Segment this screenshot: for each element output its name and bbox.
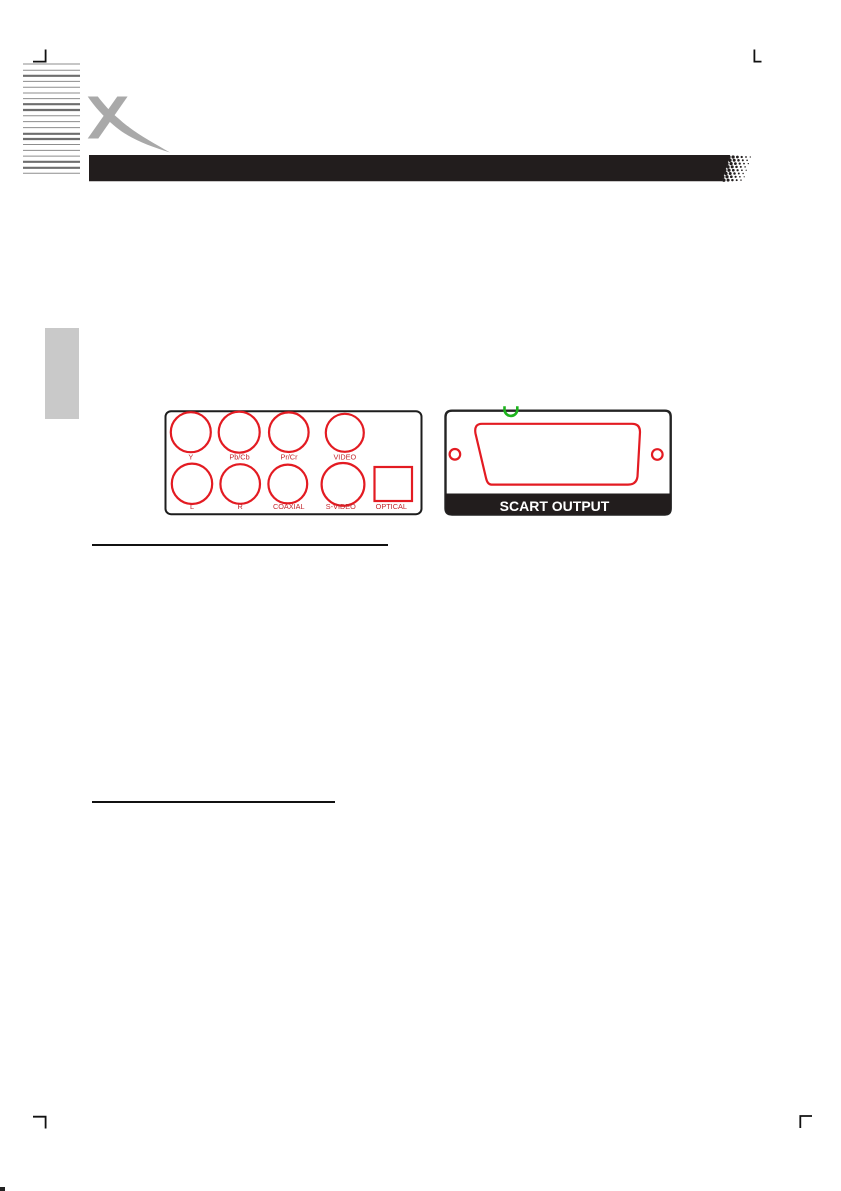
- svg-text:OPTICAL: OPTICAL: [376, 502, 407, 511]
- svg-text:Pr/Cr: Pr/Cr: [280, 453, 298, 462]
- svg-text:S-VIDEO: S-VIDEO: [326, 502, 356, 511]
- svg-text:Pb/Cb: Pb/Cb: [229, 453, 249, 462]
- svg-text:VIDEO: VIDEO: [333, 453, 356, 462]
- svg-text:SCART OUTPUT: SCART OUTPUT: [500, 498, 610, 514]
- svg-text:Y: Y: [188, 453, 193, 462]
- svg-text:COAXIAL: COAXIAL: [273, 502, 305, 511]
- svg-text:L: L: [190, 502, 194, 511]
- svg-text:R: R: [238, 502, 243, 511]
